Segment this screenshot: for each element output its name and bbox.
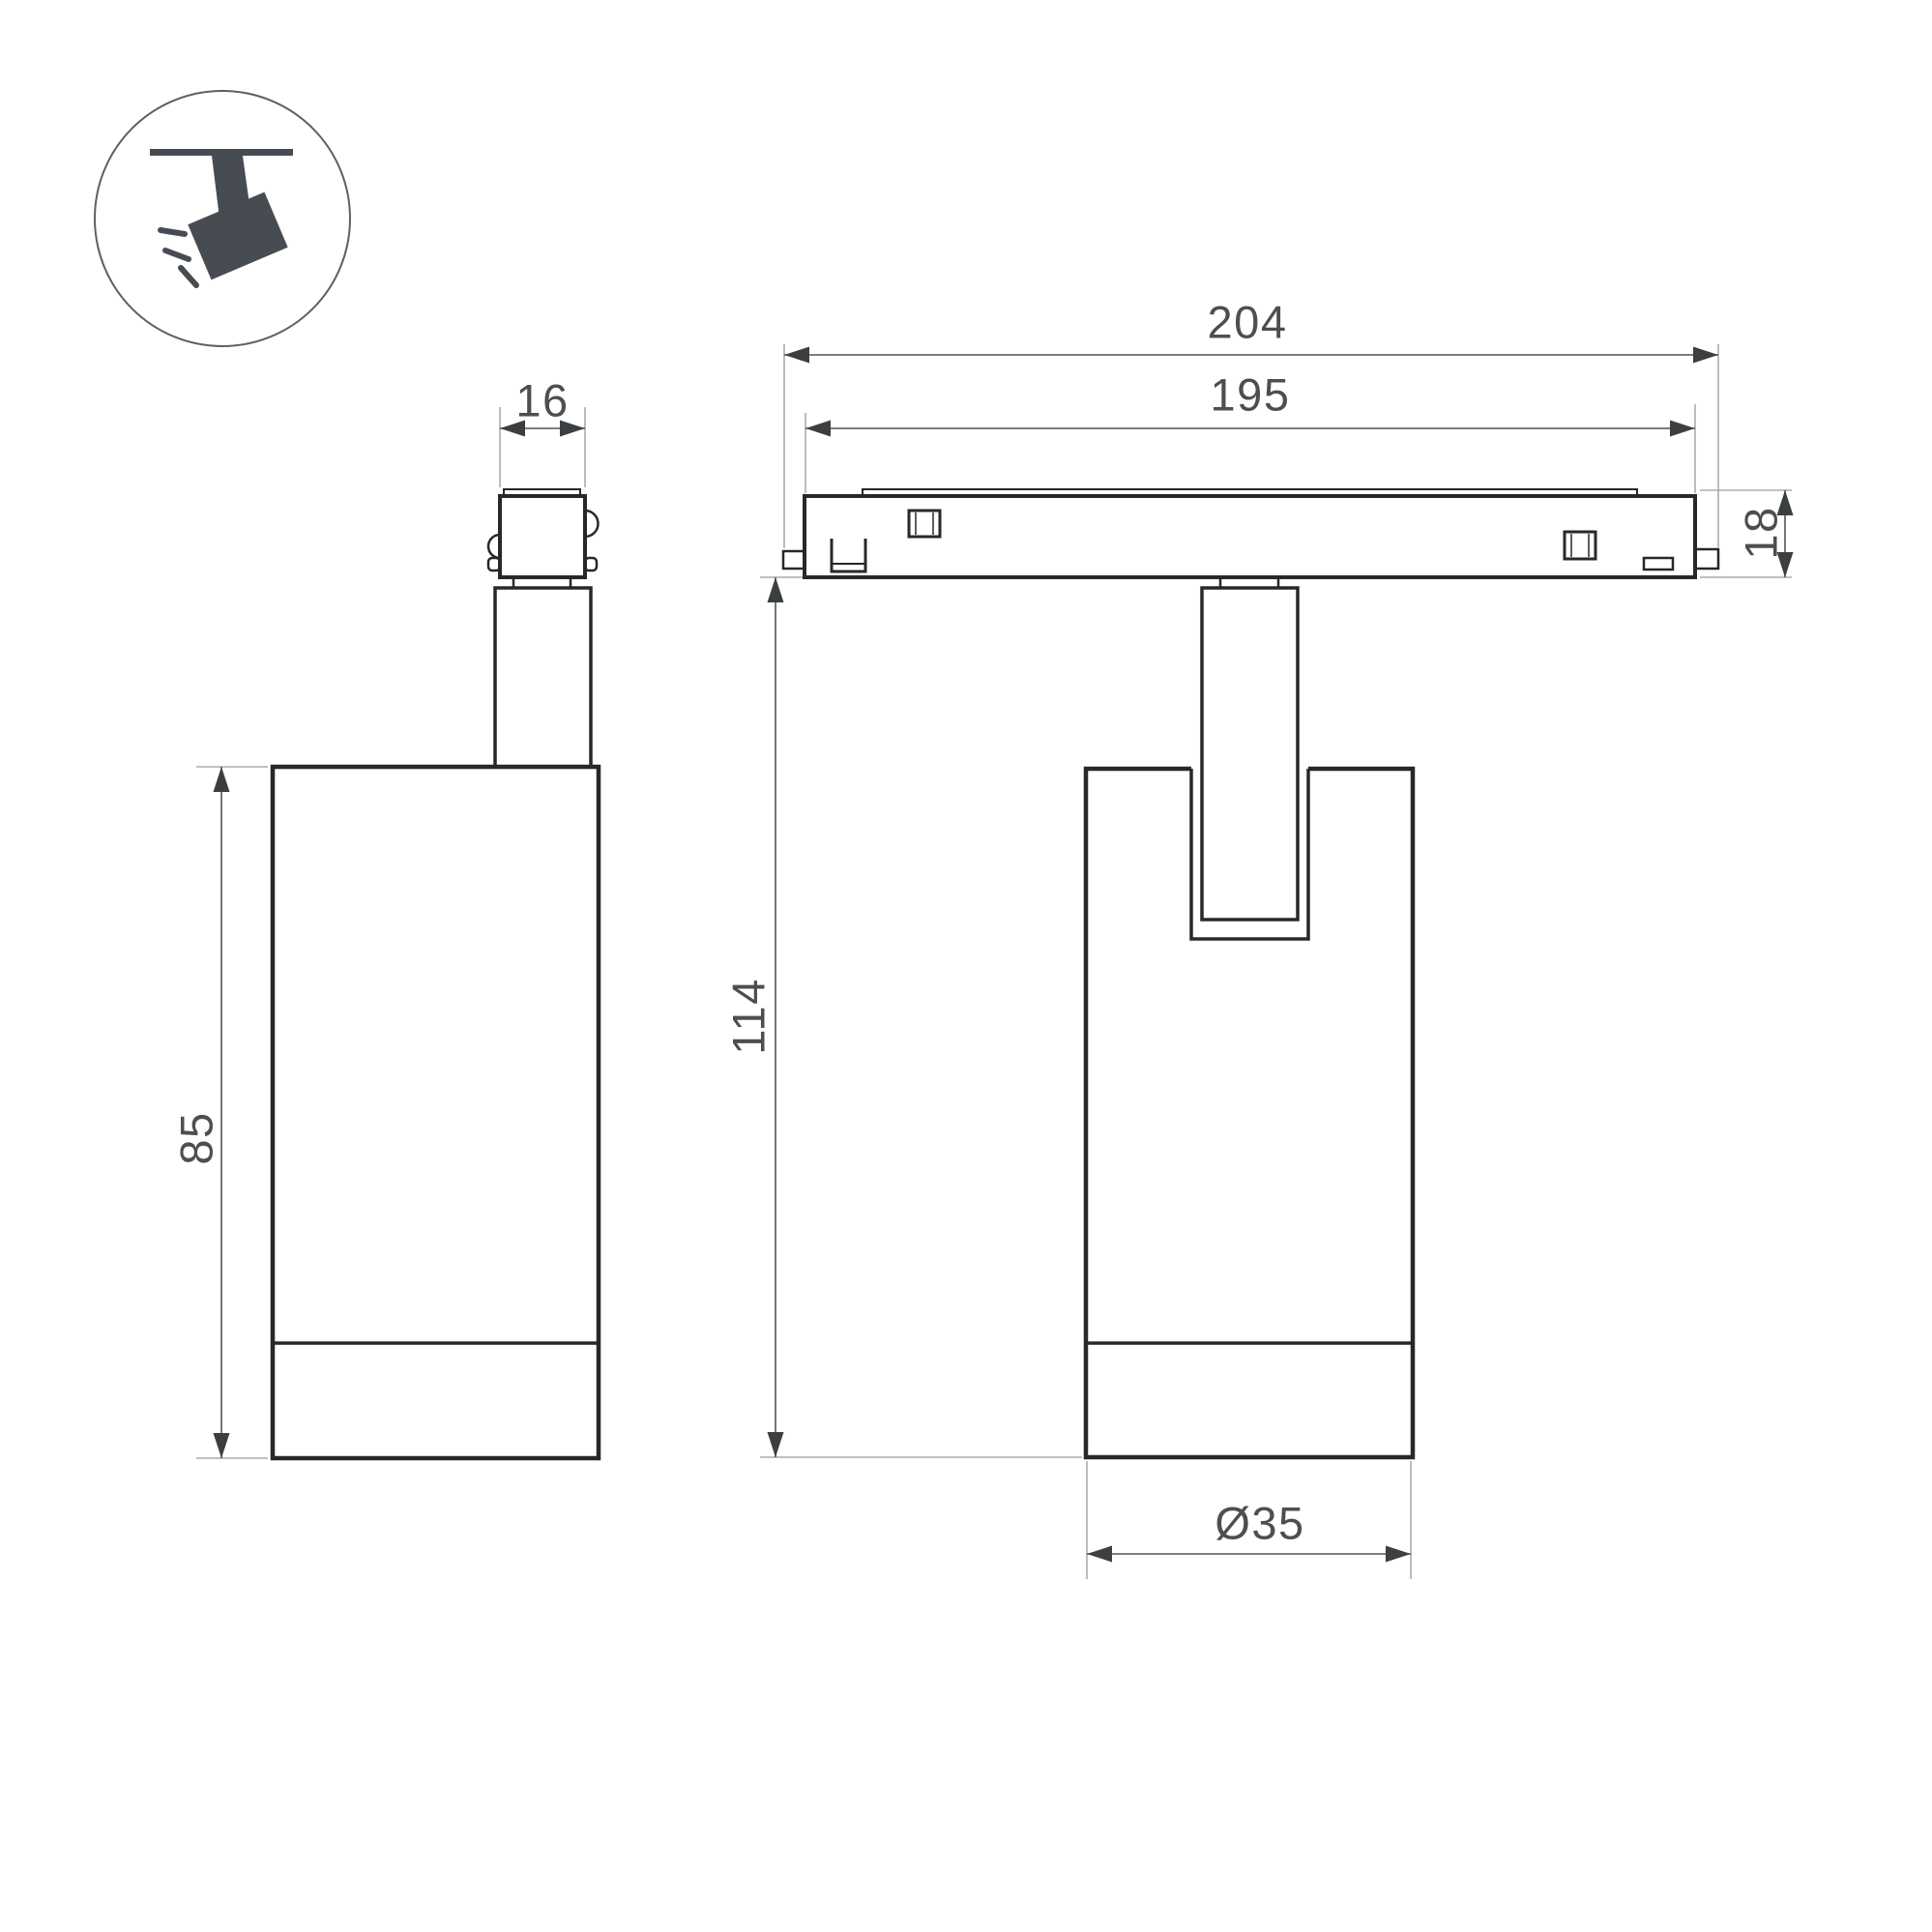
track-right-end-tab [1695, 549, 1718, 569]
drawing-svg [0, 0, 1932, 1932]
track-u-bracket [832, 539, 865, 571]
track-right-clip [1565, 532, 1595, 559]
track-left-clip [909, 511, 940, 537]
side-view [273, 489, 599, 1458]
dim-label-track-body: 195 [1211, 372, 1291, 418]
icon-ceiling-line [150, 149, 293, 156]
dimension-lines [221, 355, 1785, 1554]
track-lock-window [1644, 558, 1673, 570]
track-left-end-tab [783, 551, 805, 569]
side-stem [495, 588, 591, 767]
dim-label-track-thickness: 18 [1739, 506, 1784, 559]
front-view [783, 489, 1718, 1457]
dimension-arrows [214, 347, 1794, 1563]
dim-label-body-diameter: Ø35 [1215, 1501, 1304, 1546]
side-track-adapter [500, 496, 585, 577]
dim-label-track-overall: 204 [1208, 300, 1288, 345]
side-adapter-right-boss [585, 511, 599, 537]
front-stem [1202, 588, 1298, 920]
technical-drawing-canvas: 16 85 204 195 18 114 Ø35 [0, 0, 1932, 1932]
dimension-extension-lines [196, 344, 1792, 1579]
track-spotlight-icon [95, 91, 350, 346]
dim-label-body-height: 85 [174, 1111, 220, 1164]
dim-label-drop-height: 114 [726, 978, 772, 1054]
side-cylinder-body [273, 767, 599, 1458]
dim-label-adapter-width: 16 [515, 378, 569, 424]
